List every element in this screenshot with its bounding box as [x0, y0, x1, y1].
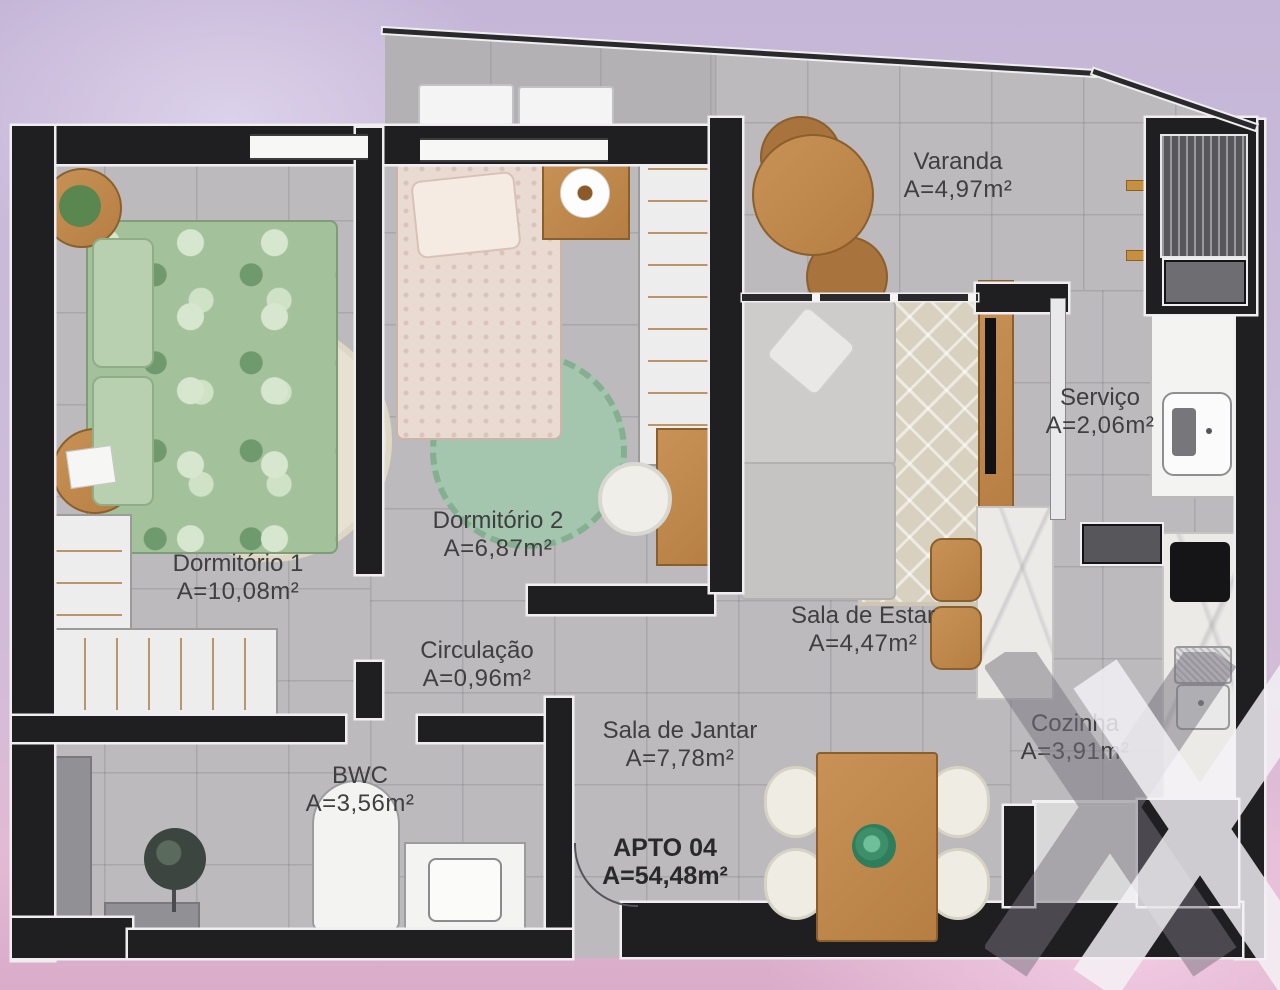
room-area: A=10,08m²: [173, 578, 304, 606]
bathroom-sink-icon: [428, 858, 502, 922]
sliding-door-varanda: [742, 294, 978, 301]
room-name: Serviço: [1046, 384, 1155, 412]
wall-bwc-top: [12, 716, 345, 742]
room-name: Dormitório 2: [433, 507, 564, 535]
room-label-sala-de-estar: Sala de Estar A=4,47m²: [791, 602, 935, 658]
sofa-seat: [740, 462, 896, 600]
room-area: A=0,96m²: [420, 665, 533, 693]
room-label-varanda: Varanda A=4,97m²: [904, 148, 1013, 204]
wardrobe-dorm2: [638, 140, 718, 466]
tv-panel: [978, 280, 1014, 516]
tv-icon: [985, 318, 996, 474]
ac-condenser-icon: [518, 86, 614, 128]
cooktop-icon: [1170, 542, 1230, 602]
unit-area: A=54,48m²: [602, 862, 728, 890]
balcony-round-table: [752, 134, 874, 256]
unit-name: APTO 04: [602, 834, 728, 862]
unit-label: APTO 04 A=54,48m²: [602, 834, 728, 890]
wardrobe-dorm1-horizontal: [44, 628, 278, 720]
bar-stool-icon: [930, 606, 982, 670]
room-area: A=7,78m²: [603, 745, 758, 773]
room-name: Circulação: [420, 637, 533, 665]
room-area: A=3,56m²: [306, 790, 415, 818]
room-name: Sala de Estar: [791, 602, 935, 630]
room-label-circulacao: Circulação A=0,96m²: [420, 637, 533, 693]
window-dorm1: [250, 134, 368, 160]
pillow-icon: [410, 171, 522, 259]
shelf-lines: [648, 150, 708, 456]
wall-bottom-left: [12, 918, 132, 958]
floor-plan: Varanda A=4,97m² Serviço A=2,06m² Dormit…: [0, 0, 1280, 990]
washer-door: [1172, 408, 1196, 456]
desk-chair-icon: [598, 462, 672, 536]
wall-bottom-bwc: [128, 930, 572, 958]
room-label-bwc: BWC A=3,56m²: [306, 762, 415, 818]
room-label-sala-de-jantar: Sala de Jantar A=7,78m²: [603, 717, 758, 773]
wall-dorm-divider: [356, 128, 382, 574]
hanger-lines: [54, 638, 268, 710]
room-label-dormitorio2: Dormitório 2 A=6,87m²: [433, 507, 564, 563]
room-label-servico: Serviço A=2,06m²: [1046, 384, 1155, 440]
room-area: A=6,87m²: [433, 535, 564, 563]
duct-shaft: [1082, 524, 1162, 564]
room-name: Dormitório 1: [173, 550, 304, 578]
wall-left: [12, 126, 54, 960]
potted-plant-icon: [59, 185, 101, 227]
room-area: A=4,47m²: [791, 630, 935, 658]
window-dorm2: [420, 138, 608, 162]
washer-knob: [1206, 428, 1212, 434]
duct-shaft: [1164, 260, 1246, 304]
room-name: Varanda: [904, 148, 1013, 176]
wall-bwc-right: [546, 698, 572, 932]
watermark-x-logo: [985, 652, 1280, 990]
ac-condenser-icon: [418, 84, 514, 126]
wall-dorm-divider-stub: [356, 662, 382, 718]
book-icon: [66, 445, 117, 489]
bar-stool-icon: [930, 538, 982, 602]
room-name: Sala de Jantar: [603, 717, 758, 745]
wall-varanda-left: [710, 118, 742, 592]
room-label-dormitorio1: Dormitório 1 A=10,08m²: [173, 550, 304, 606]
clock-icon: [560, 168, 610, 218]
ac-condenser-niche-icon: [1160, 134, 1248, 258]
room-area: A=4,97m²: [904, 176, 1013, 204]
room-area: A=2,06m²: [1046, 412, 1155, 440]
room-name: BWC: [306, 762, 415, 790]
bathroom-plant-icon: [144, 828, 206, 890]
pillow-icon: [92, 376, 154, 506]
succulent-centerpiece-icon: [852, 824, 896, 868]
pillow-icon: [92, 238, 154, 368]
wall-dorm2-bottom: [528, 586, 714, 614]
